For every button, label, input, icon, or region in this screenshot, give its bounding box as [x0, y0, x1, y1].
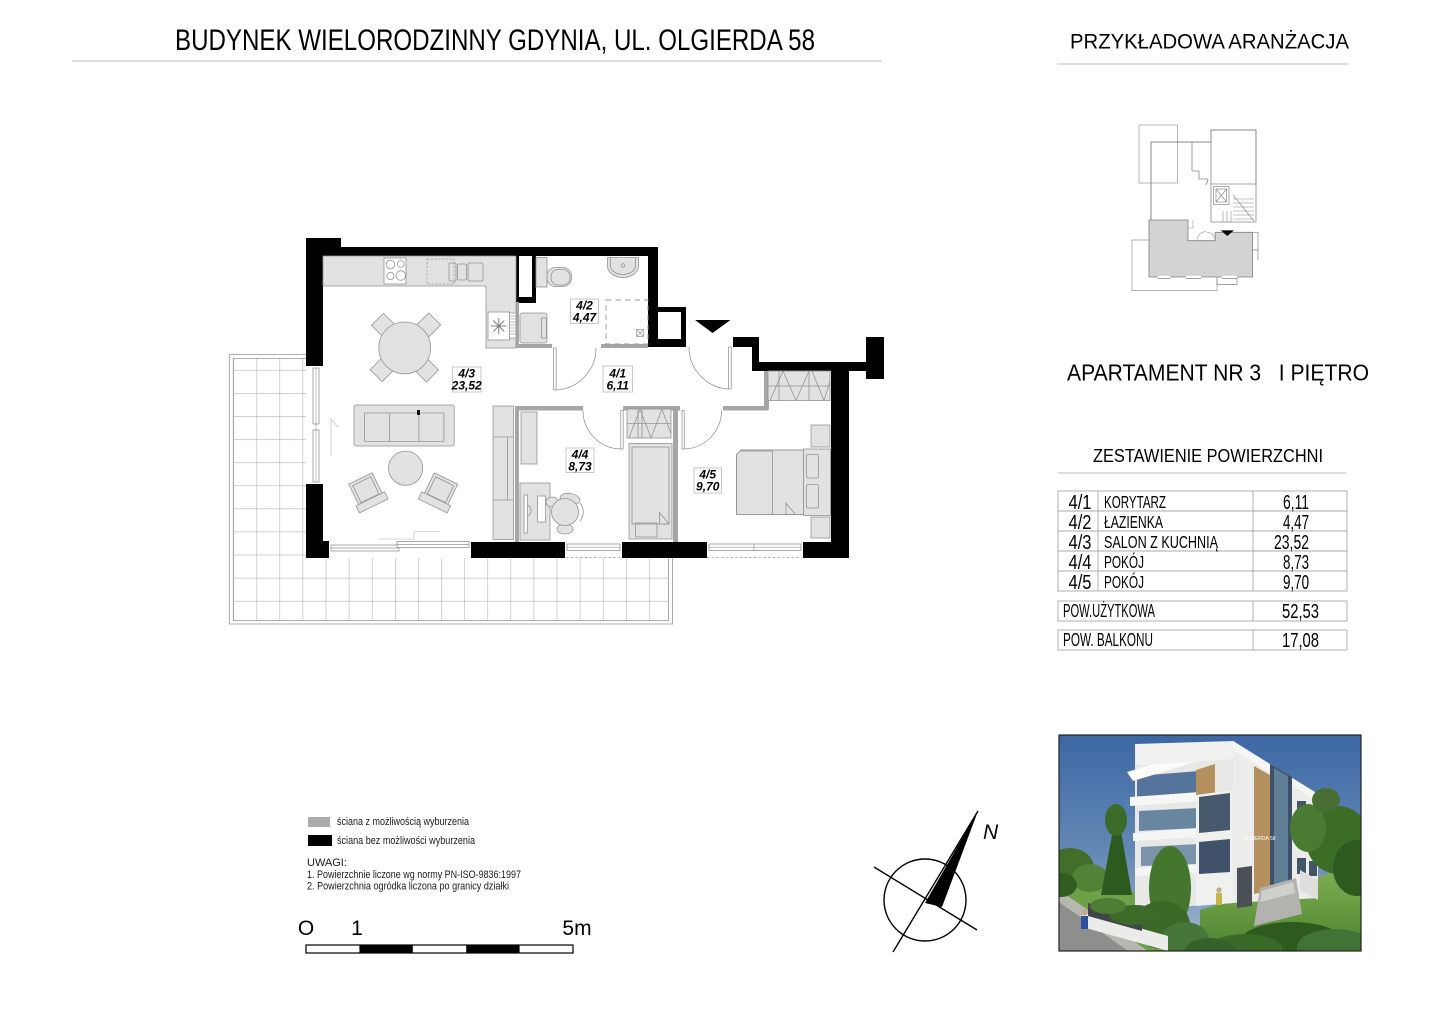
svg-text:ściana z możliwością wyburzeni: ściana z możliwością wyburzenia [337, 816, 470, 828]
svg-text:4,47: 4,47 [572, 311, 598, 325]
svg-text:8,73: 8,73 [568, 460, 592, 474]
svg-text:POKÓJ: POKÓJ [1104, 552, 1144, 572]
svg-text:1: 1 [351, 917, 363, 940]
svg-text:17,08: 17,08 [1282, 629, 1319, 652]
svg-text:ŁAZIENKA: ŁAZIENKA [1104, 512, 1163, 532]
svg-text:POKÓJ: POKÓJ [1104, 572, 1144, 592]
svg-text:N: N [983, 821, 999, 844]
svg-text:23,52: 23,52 [451, 379, 482, 393]
svg-text:6,11: 6,11 [606, 379, 629, 393]
svg-text:4/5: 4/5 [1069, 571, 1092, 594]
svg-text:9,70: 9,70 [696, 480, 720, 494]
svg-text:OLGIERDA 58: OLGIERDA 58 [1243, 836, 1276, 842]
svg-text:52,53: 52,53 [1282, 600, 1319, 623]
svg-text:POW.UŻYTKOWA: POW.UŻYTKOWA [1063, 601, 1155, 621]
svg-text:UWAGI:: UWAGI: [307, 857, 347, 869]
svg-text:SALON Z KUCHNIĄ: SALON Z KUCHNIĄ [1104, 532, 1218, 552]
svg-text:ściana bez możliwości wyburzen: ściana bez możliwości wyburzenia [337, 835, 476, 847]
svg-text:KORYTARZ: KORYTARZ [1104, 492, 1166, 512]
svg-text:5m: 5m [562, 917, 591, 940]
svg-text:O: O [298, 917, 314, 940]
svg-text:1. Powierzchnie liczone wg nor: 1. Powierzchnie liczone wg normy PN-ISO-… [307, 869, 521, 881]
svg-text:APARTAMENT NR 3 I PIĘTRO: APARTAMENT NR 3 I PIĘTRO [1067, 360, 1369, 386]
svg-text:2. Powierzchnia ogródka liczon: 2. Powierzchnia ogródka liczona po grani… [307, 881, 509, 893]
svg-text:ZESTAWIENIE POWIERZCHNI: ZESTAWIENIE POWIERZCHNI [1093, 445, 1323, 466]
svg-text:PRZYKŁADOWA ARANŻACJA: PRZYKŁADOWA ARANŻACJA [1070, 30, 1350, 54]
svg-text:POW. BALKONU: POW. BALKONU [1063, 630, 1153, 650]
svg-text:BUDYNEK WIELORODZINNY GDYNIA,: BUDYNEK WIELORODZINNY GDYNIA, UL. OLGIER… [175, 24, 815, 57]
svg-text:9,70: 9,70 [1283, 571, 1309, 594]
